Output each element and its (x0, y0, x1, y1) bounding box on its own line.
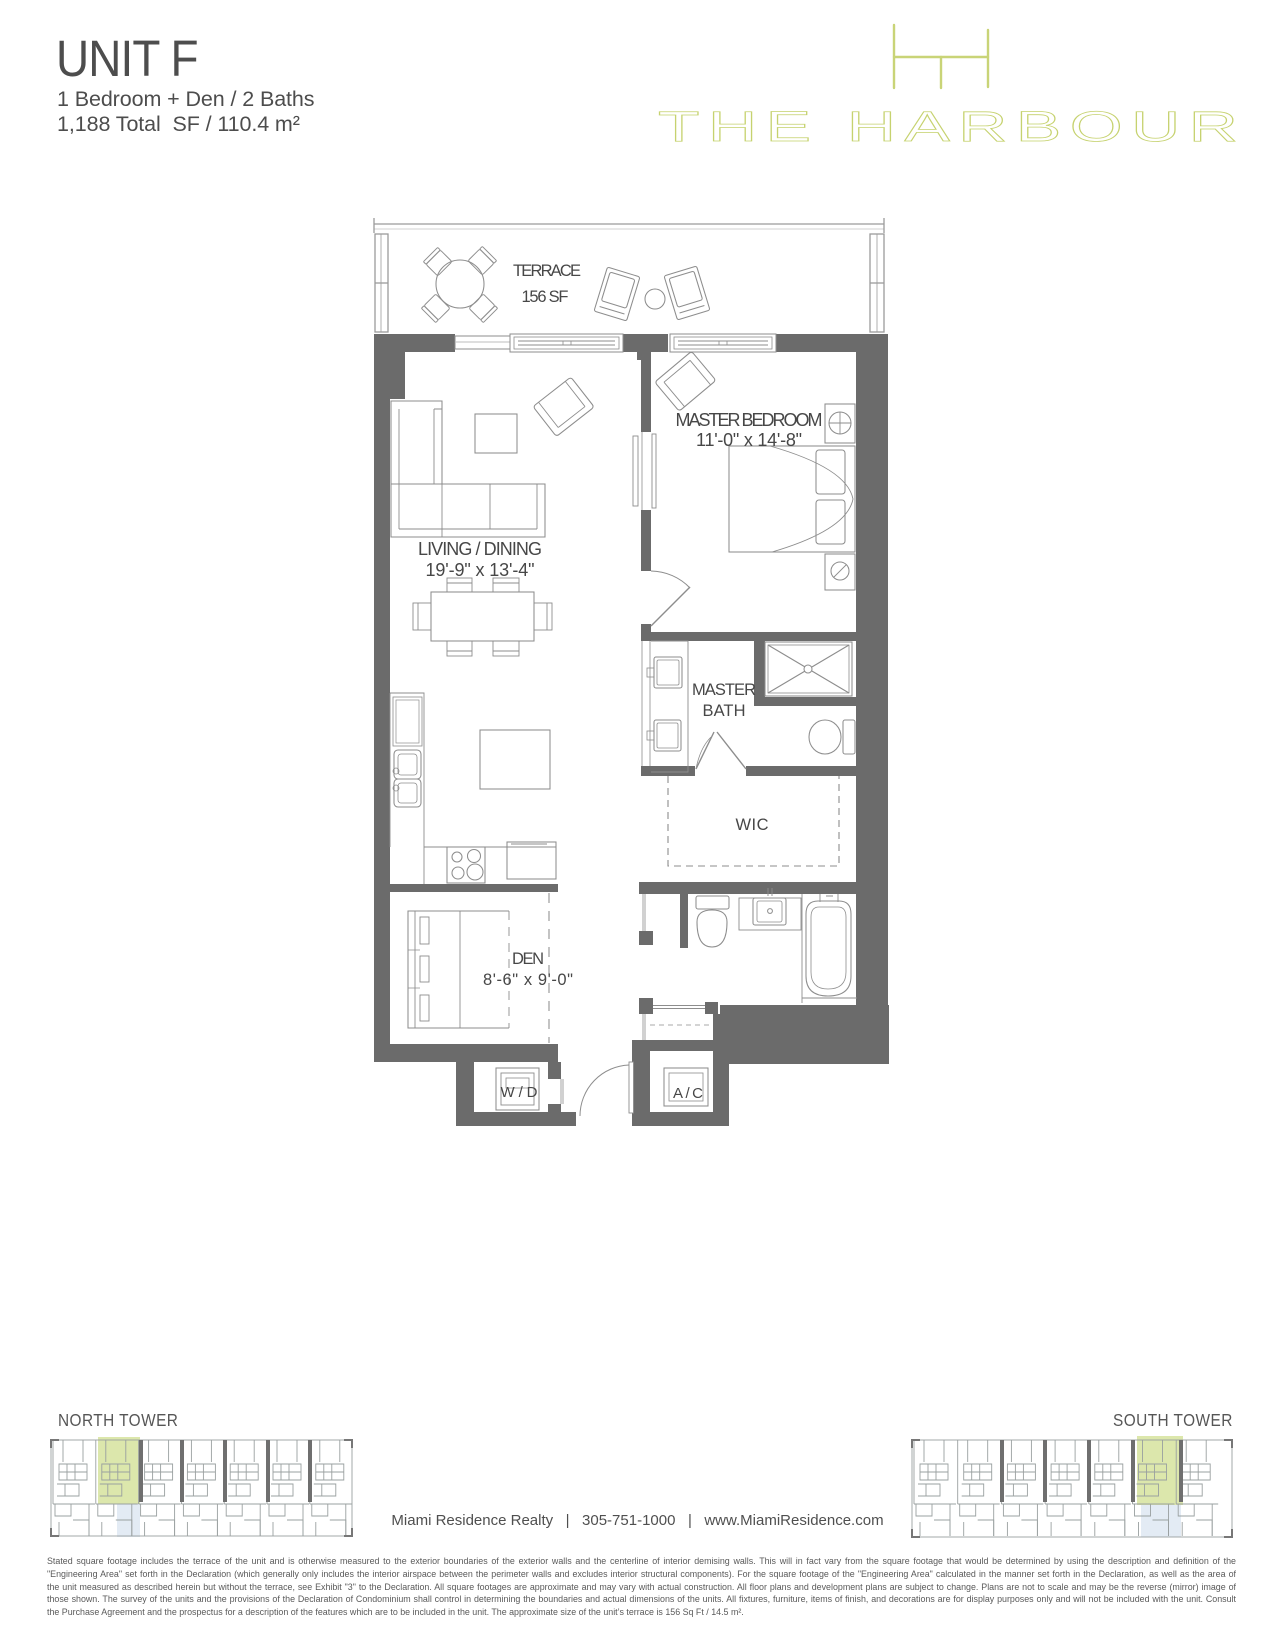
svg-text:THE HARBOUR: THE HARBOUR (658, 104, 1246, 151)
svg-text:A/C: A/C (673, 1085, 703, 1102)
svg-text:BATH: BATH (703, 702, 746, 720)
svg-text:WIC: WIC (736, 816, 769, 834)
svg-text:8'-6" x 9'-0": 8'-6" x 9'-0" (483, 971, 573, 989)
svg-text:DEN: DEN (512, 950, 544, 968)
svg-text:11'-0" x 14'-8": 11'-0" x 14'-8" (696, 430, 802, 450)
svg-text:MASTER BEDROOM: MASTER BEDROOM (676, 410, 823, 430)
svg-text:156 SF: 156 SF (522, 288, 569, 306)
svg-text:MASTER: MASTER (692, 681, 756, 699)
svg-text:LIVING / DINING: LIVING / DINING (418, 539, 542, 559)
svg-text:19'-9" x 13'-4": 19'-9" x 13'-4" (426, 560, 535, 580)
svg-text:W/D: W/D (501, 1084, 538, 1101)
svg-text:TERRACE: TERRACE (513, 262, 581, 280)
